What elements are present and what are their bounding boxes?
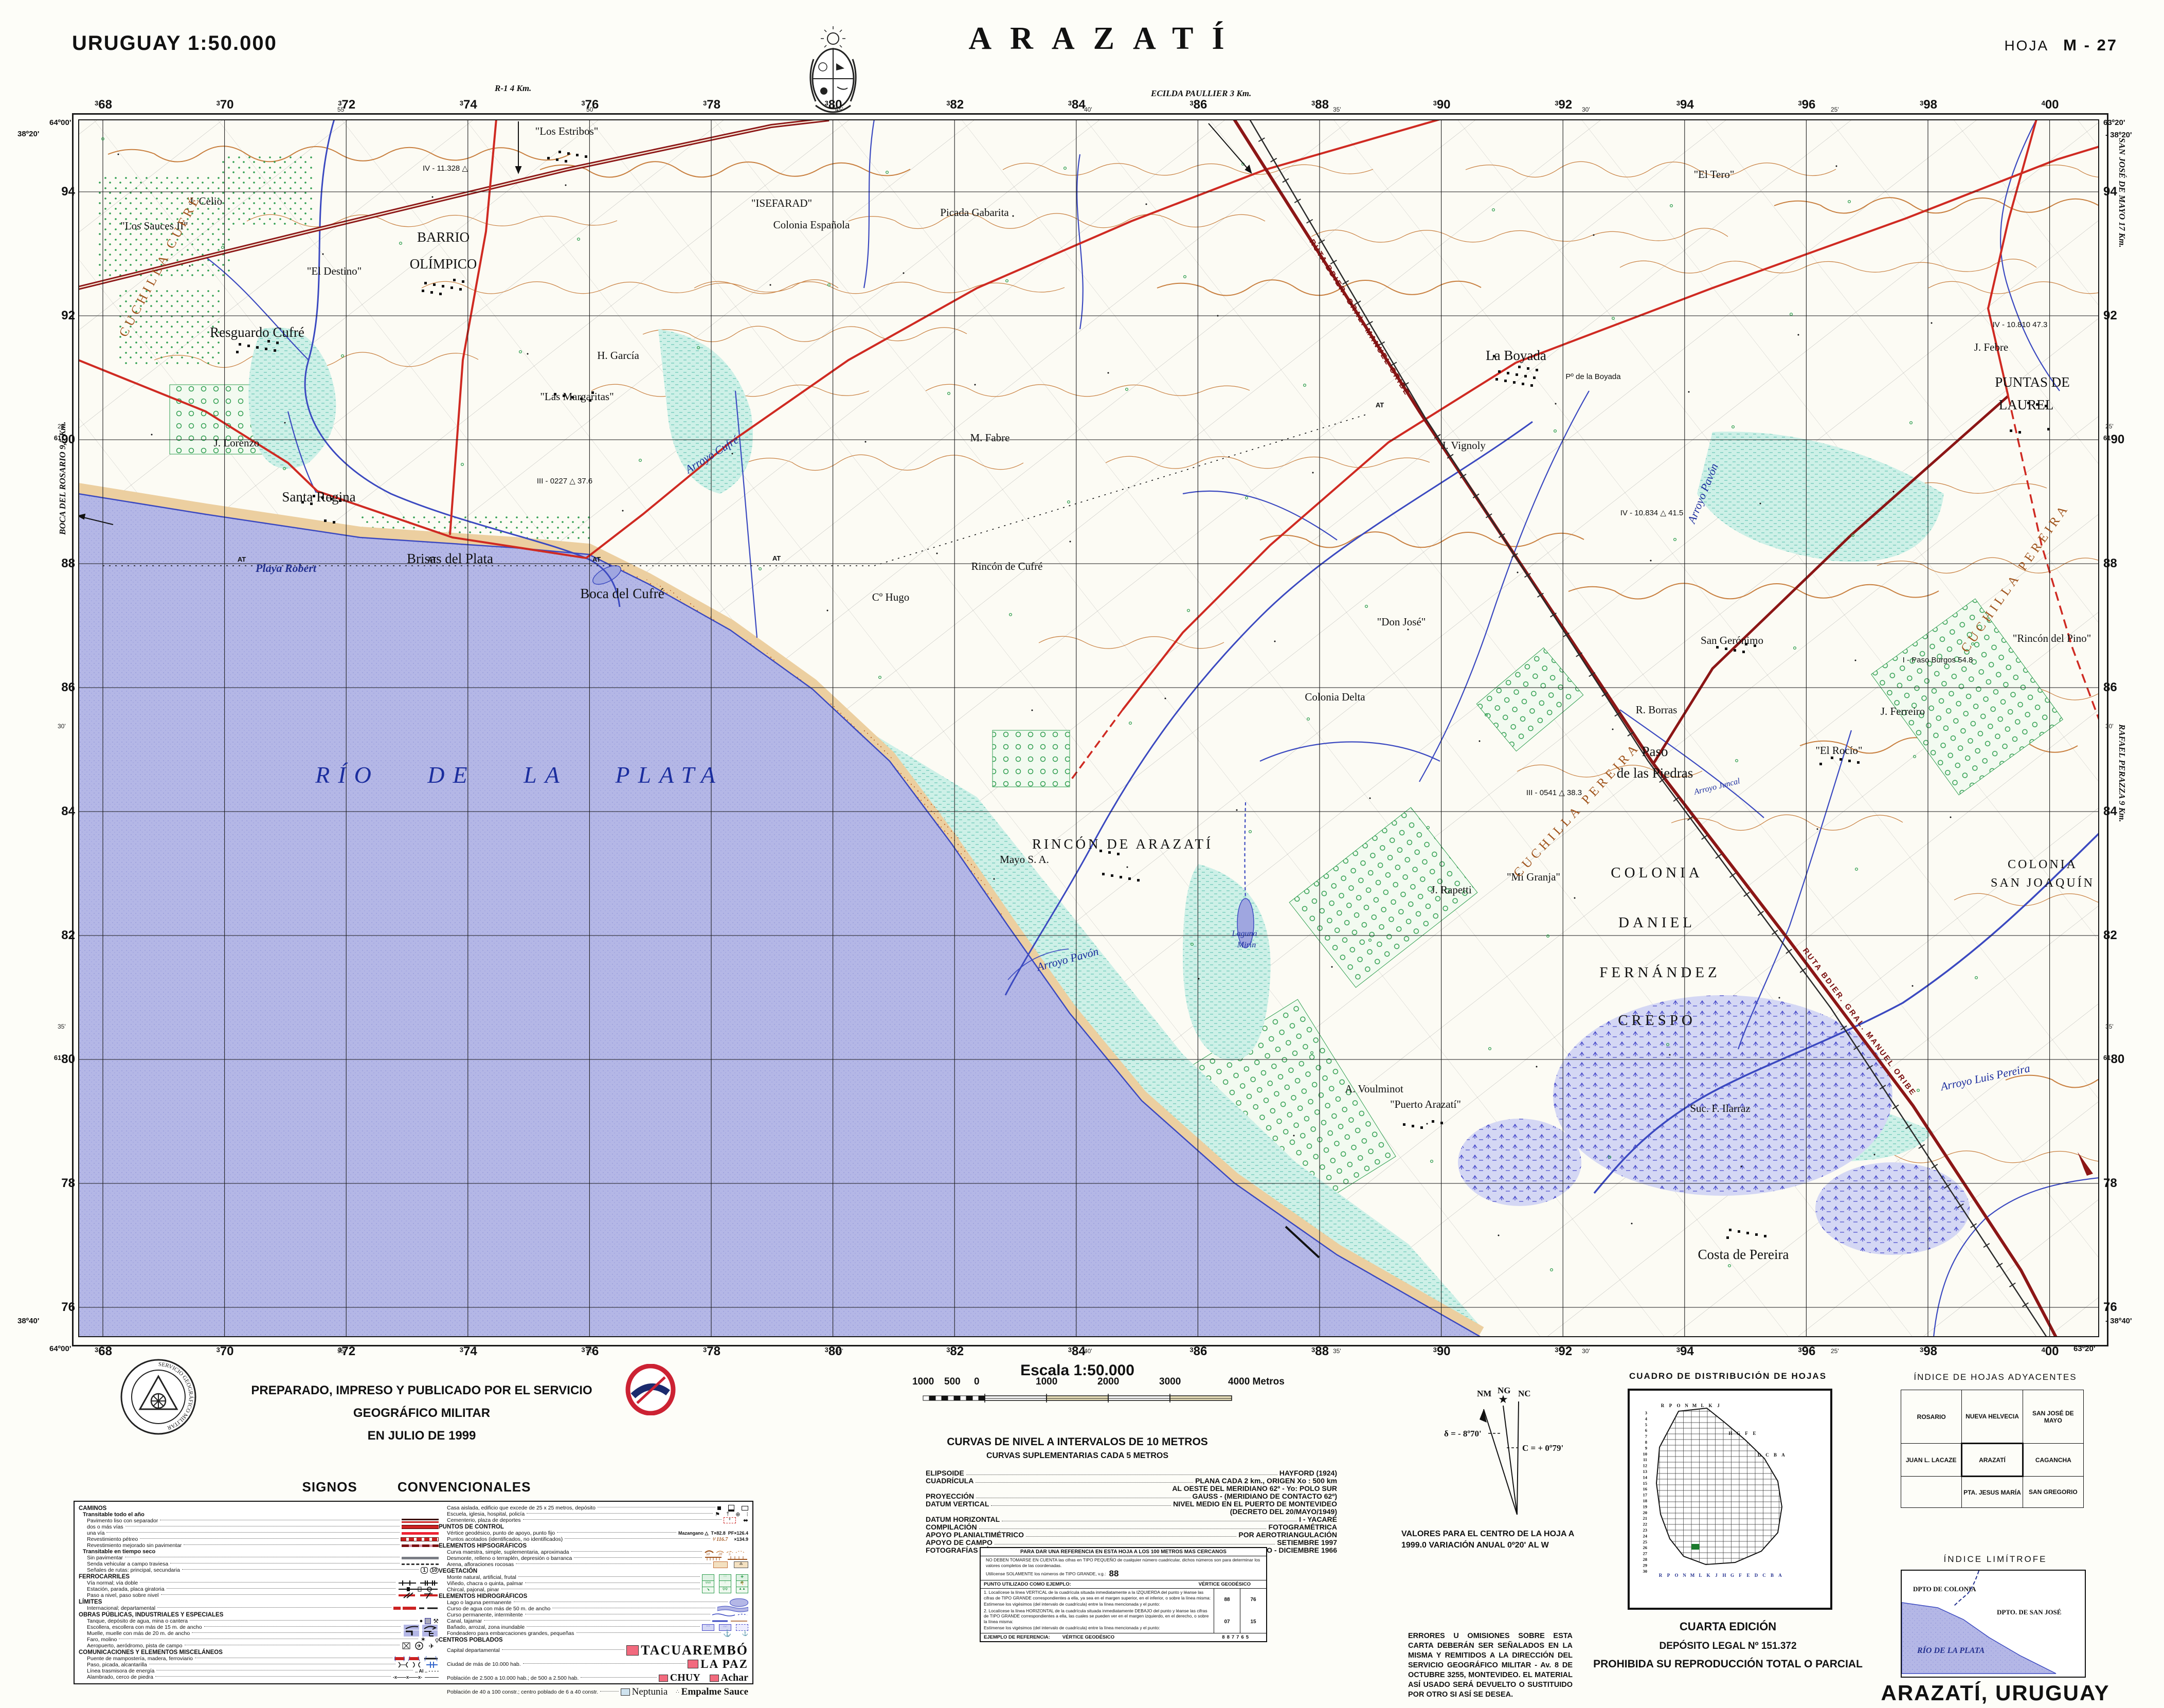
map-label: OLÍMPICO <box>410 256 477 272</box>
corner-coordinate: 38º20' <box>17 130 39 138</box>
latitude-minute: 35' <box>58 1023 66 1030</box>
legend-symbol-route-signs: 110 <box>421 1567 439 1574</box>
map-label: Colonia Española <box>773 219 850 231</box>
legend-item: Paso, picada, alcantarilla <box>79 1662 439 1668</box>
legend-item: Revestimiento mejorado sin pavimentar <box>79 1542 439 1549</box>
legend-item: Fondeadero para embarcaciones grandes, p… <box>439 1630 748 1637</box>
svg-text:O: O <box>1676 1403 1680 1408</box>
map-label: IV - 10.834 △ 41.5 <box>1620 509 1683 517</box>
legend-symbol-anchor: ⚓⚓ <box>723 1629 748 1638</box>
legend-item: Curso permanente, intermitente <box>439 1612 748 1618</box>
map-label: LAUREL <box>1999 397 2053 412</box>
legend-item-label: Escollera, escollera con más de 15 m. de… <box>79 1624 202 1630</box>
legend-item: Escollera, escollera con más de 15 m. de… <box>79 1624 439 1630</box>
legend-item: Capital departamentalTACUAREMBÓ <box>439 1643 748 1657</box>
grid-northing-label: 6180 <box>2103 1052 2124 1067</box>
legend-title: SIGNOS CONVENCIONALES <box>82 1479 751 1495</box>
sgm-seal-icon: SERVICIO GEOGRÁFICO MILITAR <box>117 1356 200 1438</box>
map-specs: ELIPSOIDEHAYFORD (1924)CUADRÍCULAPLANA C… <box>926 1469 1337 1554</box>
map-label: Paso <box>1642 744 1668 759</box>
reference-example-value: 887765 <box>1222 1634 1251 1640</box>
edition: CUARTA EDICIÓN <box>1635 1620 1820 1633</box>
longitude-minute: 40' <box>1084 1347 1092 1355</box>
sgm-oval-logo <box>625 1364 676 1415</box>
svg-text:22: 22 <box>1643 1522 1648 1527</box>
legend-item-label: Senda vehicular a campo traviesa <box>79 1561 168 1567</box>
grid-northing-label: 76 <box>2103 1300 2117 1315</box>
svg-text:18: 18 <box>1643 1498 1648 1503</box>
svg-text:B: B <box>1771 1573 1774 1578</box>
corner-coordinate: 64º00' <box>49 1344 71 1353</box>
scale-bar <box>915 1389 1265 1409</box>
destination-note: RAFAEL PERAZZA 9 Km. <box>2117 724 2127 822</box>
svg-text:8: 8 <box>1645 1440 1647 1445</box>
grid-easting-label: 398 <box>1920 98 1937 112</box>
legend-item-label: Sin pavimentar <box>79 1555 123 1561</box>
longitude-minute: 50' <box>586 106 594 113</box>
map-label: A. Voulminot <box>1345 1083 1403 1095</box>
map-label: J. Febre <box>1974 341 2009 353</box>
map-label: COLONIA <box>2008 858 2078 871</box>
grid-northing-label: 86 <box>2103 680 2117 695</box>
legend-section-header: CAMINOS <box>79 1505 439 1512</box>
map-label: Mirín <box>1237 941 1256 949</box>
legend-symbol-trail <box>402 1563 439 1565</box>
legend-item-label: Bañado, arrozal, zona inundable <box>439 1624 525 1630</box>
legend-item-label: Casa aislada, edificio que excede de 25 … <box>439 1505 596 1511</box>
legend-item-label: Alambrado, cerco de piedra <box>79 1674 153 1680</box>
contour-note-1: CURVAS DE NIVEL A INTERVALOS DE 10 METRO… <box>897 1436 1257 1448</box>
svg-text:A: A <box>1778 1573 1782 1578</box>
legend-item: Vértice geodésico, punto de apoyo, punto… <box>439 1530 748 1536</box>
legend-section-header: COMUNICACIONES Y ELEMENTOS MISCELÁNEOS <box>79 1649 439 1656</box>
grid-easting-label: 386 <box>1189 1344 1207 1359</box>
map-label: AT <box>1376 401 1384 409</box>
latitude-minute: 30' <box>58 723 66 730</box>
svg-text:N: N <box>1683 1573 1686 1578</box>
legend-item: Ciudad de más de 10.000 hab.LA PAZ <box>439 1657 748 1671</box>
map-label: AT <box>592 555 601 563</box>
legend-symbol-cap: TACUAREMBÓ <box>626 1643 748 1658</box>
svg-text:NG: NG <box>1498 1386 1511 1395</box>
map-label: "El Tero" <box>1694 168 1735 181</box>
legend-item: Línea trasmisora de energía.. AI .. - - … <box>79 1668 439 1674</box>
legend-item-label: Muelle, muelle con más de 20 m. de ancho <box>79 1630 190 1637</box>
grid-northing-label: 82 <box>2103 928 2117 943</box>
grid-easting-label: 396 <box>1798 98 1815 112</box>
map-label: Colonia Delta <box>1305 691 1365 703</box>
map-label: Cº Hugo <box>872 591 909 603</box>
grid-easting-label: 384 <box>1068 1344 1086 1359</box>
grid-easting-label: 388 <box>1311 98 1329 112</box>
grid-easting-label: 398 <box>1920 1344 1937 1359</box>
legend-symbol-geo: Mazangano △ T×82.8 PF×126.4 <box>678 1531 748 1536</box>
legend-item-label: una vía <box>79 1530 104 1536</box>
corner-coordinate: 63º20' <box>2073 1344 2095 1353</box>
grid-northing-label: 76 <box>61 1300 75 1315</box>
errors-note: ERRORES U OMISIONES SOBRE ESTA CARTA DEB… <box>1408 1631 1573 1700</box>
map-label: AT <box>428 555 436 563</box>
map-label: FERNÁNDEZ <box>1599 964 1720 981</box>
legend-item: Alambrado, cerco de piedra-x——x——x- ——— <box>79 1674 439 1680</box>
declination-values: VALORES PARA EL CENTRO DE LA HOJA A 1999… <box>1401 1529 1607 1551</box>
grid-easting-label: 400 <box>2042 98 2059 112</box>
legend-item-label: Fondeadero para embarcaciones grandes, p… <box>439 1630 574 1637</box>
map-label: Playa Robert <box>255 562 317 574</box>
longitude-minute: 35' <box>1333 1347 1341 1355</box>
grid-easting-label: 368 <box>95 1344 112 1359</box>
spec-row: DATUM VERTICALNIVEL MEDIO EN EL PUERTO D… <box>926 1500 1337 1507</box>
svg-text:E: E <box>1746 1573 1750 1578</box>
longitude-minute: 45' <box>835 106 843 113</box>
svg-text:✈: ✈ <box>417 1643 421 1649</box>
latitude-minute: 30' <box>2105 723 2114 730</box>
svg-text:16: 16 <box>1643 1486 1648 1491</box>
map-label: "El Destino" <box>307 265 362 277</box>
legend-item-label: Curso permanente, intermitente <box>439 1612 523 1618</box>
svg-text:F: F <box>1745 1431 1748 1436</box>
map-label: Laguna <box>1232 929 1257 938</box>
longitude-minute: 40' <box>1084 106 1092 113</box>
legend-item-label: Pavimento liso con separador <box>79 1518 158 1524</box>
prohibition: PROHIBIDA SU REPRODUCCIÓN TOTAL O PARCIA… <box>1589 1658 1867 1670</box>
svg-text:B: B <box>1774 1452 1777 1458</box>
map-label: "Don José" <box>1377 616 1426 628</box>
svg-text:M: M <box>1692 1403 1697 1408</box>
grid-easting-label: 378 <box>703 1344 720 1359</box>
svg-text:A: A <box>1781 1452 1785 1458</box>
map-label: "Puerto Arazatí" <box>1390 1098 1461 1110</box>
legend-item: Canal, tajamar <box>439 1618 748 1624</box>
grid-northing-label: 6190 <box>2103 433 2124 447</box>
legend-section-header: OBRAS PÚBLICAS, INDUSTRIALES Y ESPECIALE… <box>79 1612 439 1618</box>
map-label: J. Lorenzo <box>214 437 260 449</box>
legend-item-label: Población de 2.500 a 10.000 hab.; de 500… <box>439 1675 579 1681</box>
corner-coordinate: 38º40' <box>17 1317 39 1325</box>
legend-item: Internacional; departamental <box>79 1605 439 1611</box>
map-label: J. Rapetti <box>1431 884 1471 896</box>
grid-northing-label: 94 <box>61 185 75 199</box>
longitude-minute: 55' <box>337 1347 346 1355</box>
legend-item: Curva maestra, simple, suplementaria, ap… <box>439 1549 748 1555</box>
longitude-minute: 55' <box>337 106 346 113</box>
legend-item-label: Población de 40 a 100 constr.; centro po… <box>439 1689 598 1695</box>
map-label: San Gerónimo <box>1701 634 1763 646</box>
svg-text:R: R <box>1659 1573 1663 1578</box>
legend-item-label: Cementerio, plaza de deportes <box>439 1517 521 1523</box>
svg-text:NC: NC <box>1518 1389 1531 1398</box>
map-label: Pº de la Boyada <box>1565 372 1621 381</box>
scale-tick: 1000 <box>912 1376 934 1388</box>
grid-northing-label: 78 <box>2103 1176 2117 1191</box>
adjacent-sheet-cell: NUEVA HELVECIA <box>1962 1390 2023 1444</box>
legend-item: Paso a nivel, paso sobre nivel <box>79 1592 439 1598</box>
legend-symbol-limits <box>393 1606 439 1611</box>
legend-item: Población de 40 a 100 constr.; centro po… <box>439 1685 748 1699</box>
latitude-minute: 25' <box>2105 423 2114 430</box>
grid-easting-label: 400 <box>2042 1344 2059 1359</box>
sheet-index-title: CUADRO DE DISTRIBUCIÓN DE HOJAS <box>1599 1371 1856 1381</box>
map-label: Picada Gabarita <box>940 206 1009 219</box>
legend-item: Vía normal; vía doble <box>79 1580 439 1586</box>
legend-symbol-city10: LA PAZ <box>688 1658 748 1671</box>
svg-text:9: 9 <box>1645 1445 1647 1450</box>
map-label: IV - 10.810 47.3 <box>1993 320 2048 329</box>
map-label: Santa Regina <box>282 489 355 505</box>
destination-note: BOCA DEL ROSARIO 9,5 Km. <box>58 422 68 535</box>
legend-item-label: Arena, afloraciones rocosas <box>439 1561 514 1568</box>
destination-note: SAN JOSÉ DE MAYO 17 Km. <box>2117 138 2127 248</box>
longitude-minute: 30' <box>1582 1347 1590 1355</box>
destination-note: R-1 4 Km. <box>495 83 531 94</box>
sheet-index-map: RPONMLKJHGFEDCBARPONMLKJHGFEDCBA34567891… <box>1628 1389 1832 1610</box>
legend-item-label: Curva maestra, simple, suplementaria, ap… <box>439 1549 569 1555</box>
grid-easting-label: 386 <box>1189 98 1207 112</box>
legend-item-label: Vía normal; vía doble <box>79 1580 138 1586</box>
svg-text:F: F <box>1739 1573 1742 1578</box>
map-label: "El Rocío" <box>1815 744 1862 757</box>
svg-text:✈: ✈ <box>429 1642 435 1650</box>
adjacent-sheets-table: ROSARIONUEVA HELVECIASAN JOSÉ DE MAYOJUA… <box>1901 1390 2084 1508</box>
legend-symbol-cut <box>704 1555 748 1561</box>
svg-text:N: N <box>1685 1403 1688 1408</box>
grid-northing-label: 84 <box>2103 804 2117 819</box>
legend-item: Viñedo, chacra o quinta, palmarvvv::🌴 <box>439 1580 748 1587</box>
grid-easting-label: 384 <box>1068 98 1086 112</box>
grid-northing-label: 92 <box>61 309 75 323</box>
legend-item-label: Puente de mampostería, madera, ferroviar… <box>79 1656 193 1662</box>
map-label: III - 0227 △ 37.6 <box>537 477 592 486</box>
destination-note: ECILDA PAULLIER 3 Km. <box>1151 88 1251 99</box>
longitude-minute: 30' <box>1582 106 1590 113</box>
legend-item: Escuela, iglesia, hospital, policía⚑†⊕⁝ <box>439 1511 748 1517</box>
legend-item: Revestimiento pétreo <box>79 1536 439 1542</box>
map-label: AT <box>238 555 246 563</box>
svg-text:19: 19 <box>1643 1504 1648 1509</box>
map-label: CRESPO <box>1618 1012 1696 1029</box>
svg-text:DPTO DE COLONIA: DPTO DE COLONIA <box>1913 1585 1976 1593</box>
legend-symbol-fence: -x——x——x- ——— <box>393 1675 439 1680</box>
legend-item: Tanque, depósito de agua, mina o cantera… <box>79 1618 439 1624</box>
legend-section-header: PUNTOS DE CONTROL <box>439 1524 748 1530</box>
legend-symbol-course <box>712 1612 748 1617</box>
svg-text:C: C <box>1762 1573 1766 1578</box>
adjacent-sheet-cell: SAN GREGORIO <box>2023 1477 2083 1508</box>
svg-text:P: P <box>1669 1403 1672 1408</box>
svg-text:25: 25 <box>1643 1539 1648 1544</box>
svg-text:G: G <box>1730 1573 1734 1578</box>
map-label: "ISEFARAD" <box>751 197 812 209</box>
legend-symbol-road-2 <box>402 1525 439 1529</box>
map-label: BARRIO <box>417 229 470 245</box>
legend-section-header: LÍMITES <box>79 1599 439 1605</box>
map-label: Brisas del Plata <box>407 551 493 566</box>
reference-box: PARA DAR UNA REFERENCIA EN ESTA HOJA A L… <box>980 1547 1267 1642</box>
svg-text:O: O <box>1674 1573 1678 1578</box>
legend-item: Arena, afloraciones rocosas⁂ <box>439 1561 748 1568</box>
svg-text:27: 27 <box>1643 1551 1648 1556</box>
country-scale: URUGUAY 1:50.000 <box>72 32 277 55</box>
legend-symbol-curves: 50205 <box>704 1549 748 1556</box>
legend-item-label: Desmonte, relleno o terraplén, depresión… <box>439 1555 572 1561</box>
legend-item: Muelle, muelle con más de 20 m. de ancho <box>79 1630 439 1637</box>
legend-symbol-road-dirt <box>402 1557 439 1559</box>
limitrofe-map: DPTO DE COLONIA DPTO. DE SAN JOSÉ RÍO DE… <box>1901 1570 2086 1678</box>
spec-row: ELIPSOIDEHAYFORD (1924) <box>926 1469 1337 1477</box>
svg-text:17: 17 <box>1643 1493 1648 1498</box>
adjacent-sheet-cell: ARAZATÍ <box>1962 1444 2023 1477</box>
legend-box: CAMINOSTransitable todo el añoPavimento … <box>74 1501 753 1684</box>
map-label: IV - 11.328 △ <box>423 164 468 173</box>
legend-symbol-power: .. AI .. - - - - <box>415 1668 439 1674</box>
svg-text:20: 20 <box>1643 1510 1648 1515</box>
legend-item: Monte natural, artificial, frutal::::✚ <box>439 1574 748 1580</box>
map-label: "Los Estribos" <box>535 125 599 137</box>
svg-text:J: J <box>1717 1403 1720 1408</box>
legend-item-label: Línea trasmisora de energía <box>79 1668 154 1674</box>
corner-coordinate: 63º20' <box>2103 118 2125 127</box>
legend-item-label: Señales de rutas: principal, secundaria <box>79 1567 180 1573</box>
grid-northing-label: 82 <box>61 928 75 943</box>
map-label: Mayo S. A. <box>1000 853 1049 866</box>
legend-item-label: Aeropuerto, aeródromo, pista de campo <box>79 1643 183 1649</box>
map-label: PUNTAS DE <box>1995 374 2070 390</box>
svg-text:28: 28 <box>1643 1557 1648 1562</box>
map-label: de las Piedras <box>1617 765 1693 781</box>
legend-item-label: Revestimiento pétreo <box>79 1536 138 1542</box>
grid-easting-label: 374 <box>460 1344 477 1359</box>
legend-section-header: ELEMENTOS HIDROGRÁFICOS <box>439 1593 748 1599</box>
spec-row: APOYO DE CAMPOSETIEMBRE 1997 <box>926 1538 1337 1546</box>
legend-symbol-cem: ✝⬌ <box>724 1517 748 1524</box>
adjacent-sheet-cell: CAGANCHA <box>2023 1444 2083 1477</box>
map-label: La Boyada <box>1486 348 1546 363</box>
svg-text:12: 12 <box>1643 1463 1648 1468</box>
legend-symbol-canal <box>712 1619 748 1624</box>
map-label: Costa de Pereira <box>1698 1247 1789 1262</box>
map-label: J. Ferreiro <box>1881 705 1925 717</box>
grid-easting-label: 388 <box>1311 1344 1329 1359</box>
svg-text:δ = - 8º70': δ = - 8º70' <box>1444 1429 1482 1439</box>
legend-item-label: Canal, tajamar <box>439 1618 482 1624</box>
spec-row: APOYO PLANIALTIMÉTRICOPOR AEROTRIANGULAC… <box>926 1531 1337 1538</box>
svg-text:26: 26 <box>1643 1545 1648 1550</box>
legend-item: Puntos acotados (identificados, no ident… <box>439 1536 748 1542</box>
longitude-minute: 25' <box>1831 1347 1839 1355</box>
map-label: Rincón de Cufré <box>971 560 1043 572</box>
svg-text:E: E <box>1753 1431 1756 1436</box>
svg-text:NM: NM <box>1477 1389 1491 1398</box>
scale-title: Escala 1:50.000 <box>949 1362 1206 1379</box>
grid-northing-label: 94 <box>2103 185 2117 199</box>
svg-text:30: 30 <box>1643 1569 1648 1574</box>
legend-item: Curso de agua con más de 50 m. de ancho <box>439 1606 748 1612</box>
legal-deposit: DEPÓSITO LEGAL Nº 151.372 <box>1635 1641 1820 1652</box>
longitude-minute: 35' <box>1333 106 1341 113</box>
svg-text:7: 7 <box>1645 1434 1648 1439</box>
grid-northing-label: 88 <box>2103 556 2117 571</box>
page-title: ARAZATÍ <box>951 21 1260 57</box>
svg-text:21: 21 <box>1643 1516 1648 1521</box>
refbox-title: PARA DAR UNA REFERENCIA EN ESTA HOJA A L… <box>981 1548 1266 1556</box>
longitude-minute: 50' <box>586 1347 594 1355</box>
svg-text:14: 14 <box>1643 1475 1648 1480</box>
svg-text:P: P <box>1667 1573 1670 1578</box>
svg-text:R: R <box>1661 1403 1665 1408</box>
legend-symbol-spot: ⑂ 116.7×134.9 <box>712 1537 748 1542</box>
grid-easting-label: 374 <box>460 98 477 112</box>
map-label: RINCÓN DE ARAZATÍ <box>1032 836 1213 852</box>
map-label: Boca del Cufré <box>580 586 664 601</box>
spec-row: CUADRÍCULAPLANA CADA 2 km., ORIGEN Xo : … <box>926 1477 1337 1484</box>
svg-text:D: D <box>1758 1452 1761 1458</box>
svg-text:D: D <box>1755 1573 1758 1578</box>
map-label: I - Paso Burgos 54.8 <box>1903 656 1973 664</box>
legend-item-label: Internacional; departamental <box>79 1605 155 1611</box>
grid-northing-label: 6180 <box>54 1052 75 1067</box>
limitrofe-title: ÍNDICE LIMÍTROFE <box>1882 1554 2108 1565</box>
refbox-big-example: 88 <box>1109 1569 1119 1579</box>
grid-easting-label: 394 <box>1676 1344 1694 1359</box>
svg-text:3: 3 <box>1645 1410 1647 1415</box>
legend-symbol-pass <box>398 1661 439 1668</box>
legend-item: Lago o laguna permanente <box>439 1599 748 1606</box>
longitude-minute: 45' <box>835 1347 843 1355</box>
legend-item: una vía <box>79 1530 439 1536</box>
map-label: RÍO DE LA PLATA <box>315 762 724 788</box>
scale-tick: 4000 Metros <box>1228 1376 1285 1388</box>
svg-text:13: 13 <box>1643 1469 1648 1474</box>
legend-item: Senda vehicular a campo traviesa <box>79 1561 439 1567</box>
map-canvas: BARRIOOLÍMPICOJ. Celio"Los Sauces II""Lo… <box>78 119 2099 1337</box>
legend-item-label: Paso a nivel, paso sobre nivel <box>79 1592 159 1598</box>
legend-symbol-city25: CHUYAchar <box>659 1672 748 1684</box>
corner-coordinate: 64º00' <box>49 118 71 127</box>
spec-row: COMPILACIÓNFOTOGRAMÉTRICA <box>926 1523 1337 1531</box>
map-label: DANIEL <box>1618 914 1696 931</box>
spec-row-cont: (DECRETO DEL 20/MAYO/1949) <box>926 1507 1337 1515</box>
legend-symbol-city40: Neptunia∴Empalme Sauce <box>621 1686 748 1698</box>
map-label: AT <box>772 554 781 562</box>
imprint: PREPARADO, IMPRESO Y PUBLICADO POR EL SE… <box>221 1379 622 1447</box>
map-label: Suc. F. Ilarraz <box>1690 1102 1750 1114</box>
svg-text:C: C <box>1765 1452 1769 1458</box>
legend-symbol-rail <box>398 1580 439 1586</box>
legend-item-label: Ciudad de más de 10.000 hab. <box>439 1661 521 1667</box>
map-sheet: URUGUAY 1:50.000 ARAZATÍ HOJAM - 27 <box>0 0 2164 1708</box>
legend-section-header: ELEMENTOS HIPSOGRÁFICOS <box>439 1543 748 1549</box>
svg-text:C = + 0º79': C = + 0º79' <box>1522 1443 1563 1453</box>
grid-easting-label: 370 <box>217 1344 234 1359</box>
svg-text:K: K <box>1706 1573 1710 1578</box>
longitude-minute: 25' <box>1831 106 1839 113</box>
legend-symbol-rail-cross <box>398 1592 439 1599</box>
legend-item-label: Estación, parada, placa giratoria <box>79 1586 165 1592</box>
grid-easting-label: 392 <box>1555 98 1572 112</box>
legend-item: Señales de rutas: principal, secundaria1… <box>79 1567 439 1573</box>
svg-text:L: L <box>1701 1403 1704 1408</box>
legend-item-label: Chircal, pajonal, pinar <box>439 1587 499 1593</box>
legend-item-label: Paso, picada, alcantarilla <box>79 1662 147 1668</box>
legend-item: Casa aislada, edificio que excede de 25 … <box>439 1505 748 1511</box>
legend-item: Pavimento liso con separador <box>79 1518 439 1524</box>
legend-item-label: dos o más vías <box>79 1524 123 1530</box>
grid-easting-label: 382 <box>946 98 964 112</box>
adjacent-sheet-cell: ROSARIO <box>1901 1390 1962 1444</box>
grid-easting-label: 396 <box>1798 1344 1815 1359</box>
legend-section-header: FERROCARRILES <box>79 1574 439 1580</box>
legend-item-label: Viñedo, chacra o quinta, palmar <box>439 1580 523 1587</box>
